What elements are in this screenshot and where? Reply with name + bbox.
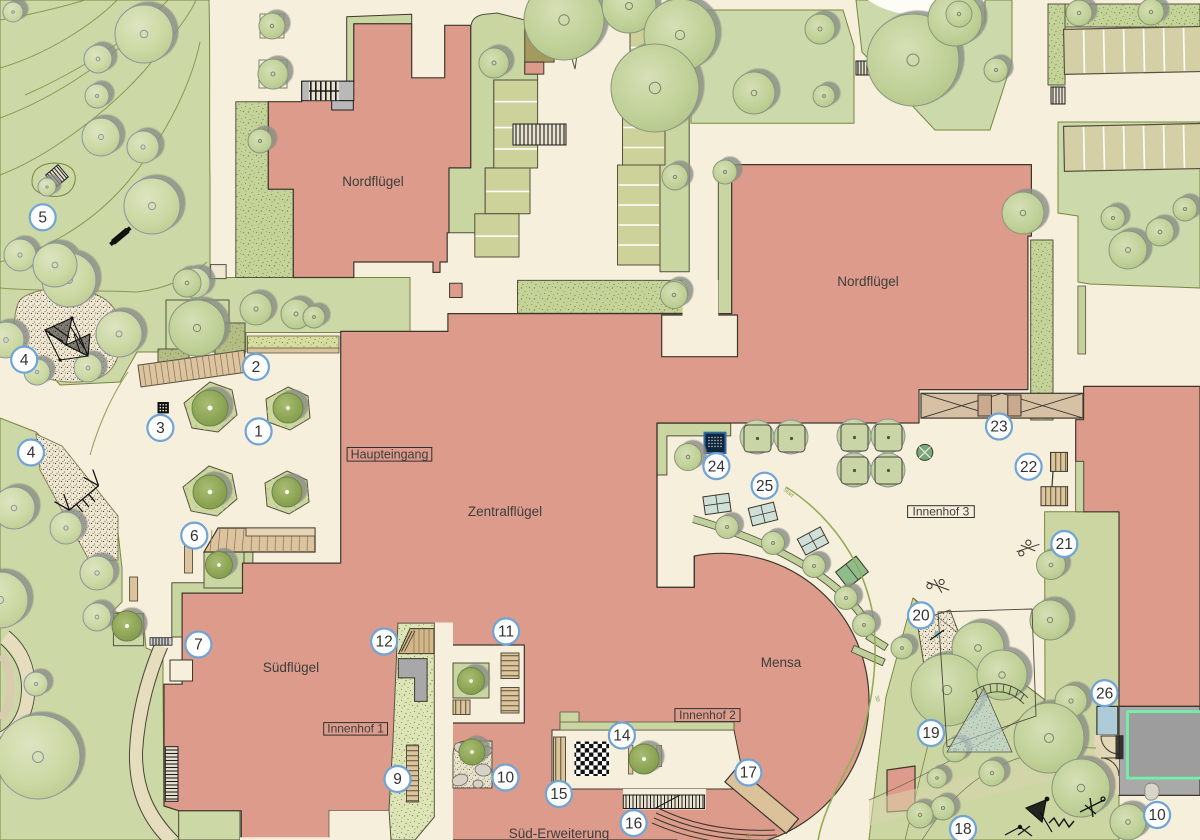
svg-text:26: 26: [1096, 685, 1113, 702]
svg-text:17: 17: [740, 765, 757, 782]
svg-text:5: 5: [38, 210, 47, 227]
svg-text:Nordflügel: Nordflügel: [342, 174, 404, 189]
svg-text:20: 20: [912, 608, 930, 625]
svg-text:10: 10: [497, 770, 515, 787]
svg-text:25: 25: [756, 478, 773, 495]
svg-text:6: 6: [190, 528, 199, 545]
svg-text:1: 1: [254, 424, 263, 441]
svg-text:Nordflügel: Nordflügel: [837, 274, 899, 289]
svg-text:10: 10: [1148, 807, 1166, 824]
svg-text:24: 24: [708, 458, 726, 475]
svg-text:12: 12: [375, 634, 392, 651]
svg-text:Haupteingang: Haupteingang: [351, 447, 429, 461]
svg-text:Innenhof 3: Innenhof 3: [913, 504, 970, 518]
svg-text:15: 15: [550, 786, 567, 803]
svg-text:4: 4: [27, 445, 36, 462]
svg-text:23: 23: [990, 419, 1007, 436]
svg-text:22: 22: [1020, 459, 1037, 476]
svg-text:16: 16: [625, 815, 642, 832]
svg-text:2: 2: [252, 359, 261, 376]
svg-text:7: 7: [194, 637, 203, 654]
svg-text:Süd-Erweiterung: Süd-Erweiterung: [509, 826, 610, 840]
svg-text:Zentralflügel: Zentralflügel: [468, 504, 542, 519]
svg-text:4: 4: [20, 352, 29, 369]
svg-text:Südflügel: Südflügel: [263, 660, 319, 675]
svg-text:21: 21: [1056, 536, 1073, 553]
svg-text:11: 11: [498, 624, 514, 641]
svg-text:14: 14: [613, 728, 631, 745]
svg-text:3: 3: [156, 420, 165, 437]
svg-text:Mensa: Mensa: [761, 655, 802, 670]
svg-text:18: 18: [954, 821, 971, 838]
svg-text:9: 9: [393, 771, 402, 788]
svg-text:19: 19: [922, 725, 939, 742]
svg-text:Innenhof 2: Innenhof 2: [679, 708, 736, 722]
svg-text:Innenhof 1: Innenhof 1: [327, 722, 384, 736]
